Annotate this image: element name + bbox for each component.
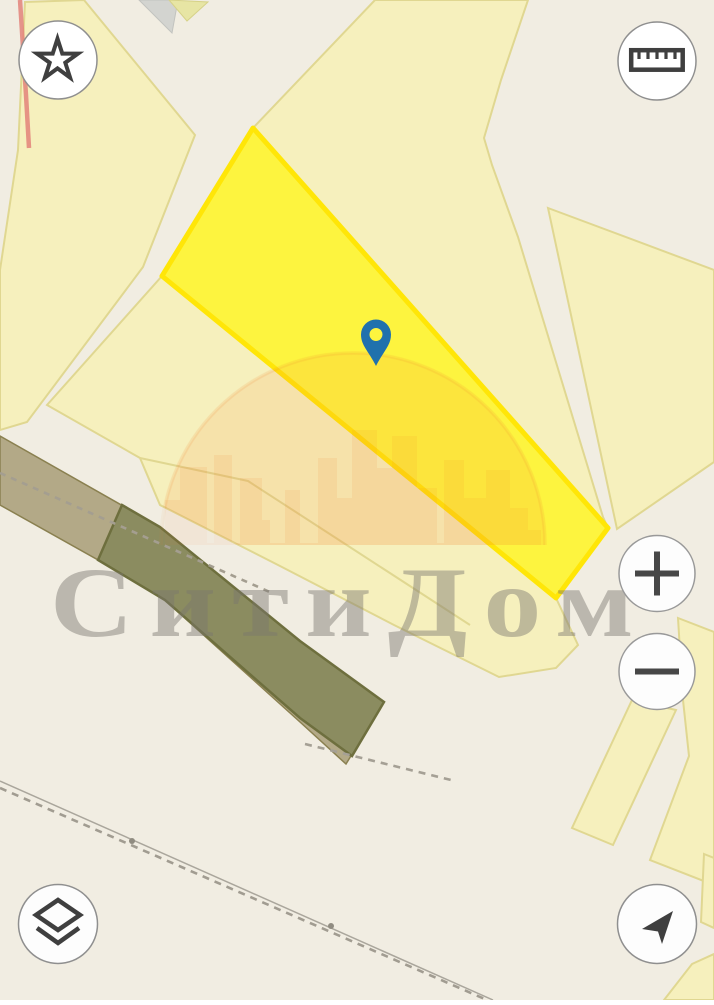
svg-text:СитиДом: СитиДом [50, 547, 650, 658]
